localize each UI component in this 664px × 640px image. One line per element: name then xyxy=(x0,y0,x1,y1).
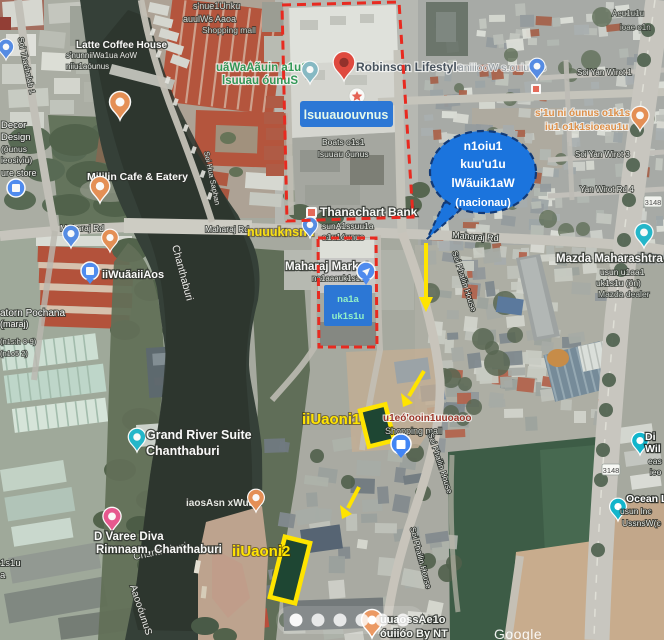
svg-text:iiUaoni2: iiUaoni2 xyxy=(232,543,290,560)
svg-text:n1oiu1: n1oiu1 xyxy=(464,139,503,153)
svg-text:ieo: ieo xyxy=(650,467,662,477)
svg-text:a: a xyxy=(0,570,6,581)
svg-text:kuu'u1u: kuu'u1u xyxy=(460,157,506,171)
svg-text:iiUaoni1: iiUaoni1 xyxy=(302,411,360,428)
svg-text:Wil: Wil xyxy=(645,443,661,455)
svg-text:lWãuik1aW: lWãuik1aW xyxy=(451,176,515,190)
svg-text:(nacionau): (nacionau) xyxy=(455,197,511,209)
svg-text:UssnsW(c: UssnsW(c xyxy=(622,518,661,528)
svg-text:Di: Di xyxy=(645,431,656,443)
svg-text:usun lnc: usun lnc xyxy=(620,506,652,516)
svg-text:Google: Google xyxy=(494,626,542,640)
svg-text:Ocean L: Ocean L xyxy=(626,493,664,505)
svg-text:1s1u: 1s1u xyxy=(0,558,21,569)
svg-text:u1eó'ooin1uuoaoo: u1eó'ooin1uuoaoo xyxy=(383,413,472,424)
svg-text:3148: 3148 xyxy=(603,466,620,475)
svg-text:eas: eas xyxy=(648,456,662,466)
